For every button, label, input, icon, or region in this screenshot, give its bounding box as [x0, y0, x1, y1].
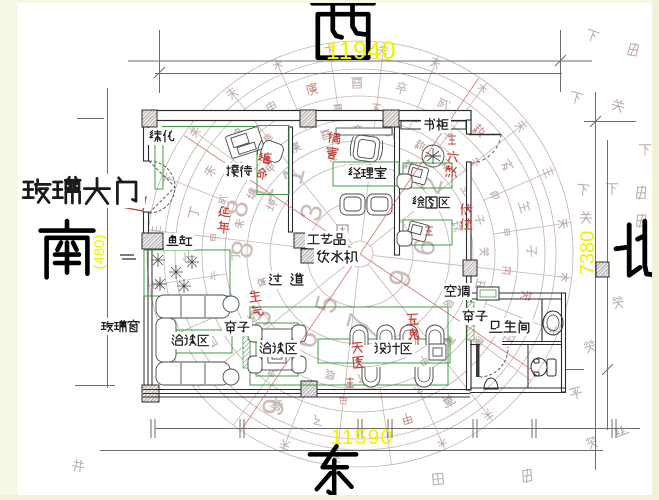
svg-text:7380: 7380 — [577, 231, 599, 276]
svg-text:11590: 11590 — [331, 426, 394, 449]
svg-text:(480): (480) — [91, 234, 108, 269]
svg-text:11940: 11940 — [326, 37, 396, 65]
